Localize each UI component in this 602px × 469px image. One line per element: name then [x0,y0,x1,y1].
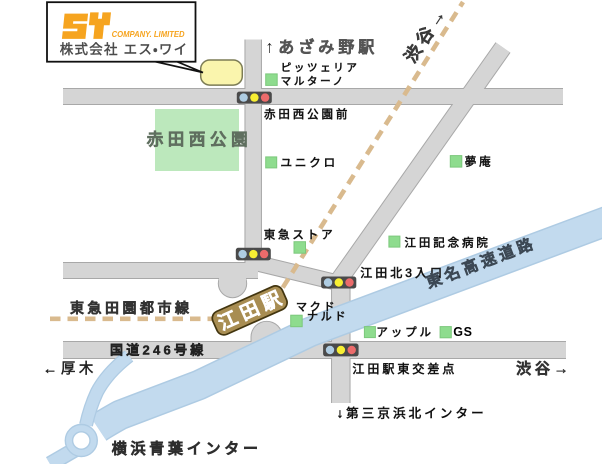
svg-text:渋谷→: 渋谷→ [516,360,572,378]
svg-text:←厚木: ←厚木 [43,361,97,378]
svg-text:ピッツェリア: ピッツェリア [281,62,360,74]
svg-text:GS: GS [453,325,472,339]
svg-text:横浜青葉インター: 横浜青葉インター [112,440,262,458]
svg-text:赤田西公園: 赤田西公園 [147,129,253,149]
svg-text:夢庵: 夢庵 [465,155,494,169]
svg-text:アップル: アップル [376,326,434,339]
svg-text:あざみ野駅: あざみ野駅 [278,37,378,56]
svg-text:江田駅東交差点: 江田駅東交差点 [352,362,457,376]
svg-text:赤田西公園前: 赤田西公園前 [264,107,350,121]
svg-text:東急田園都市線: 東急田園都市線 [70,300,193,316]
svg-text:株式会社 エス・ワイ: 株式会社 エス・ワイ [60,42,189,57]
svg-text:マルターノ: マルターノ [281,76,346,88]
svg-text:ナルド: ナルド [307,310,348,323]
svg-text:↑: ↑ [265,38,274,57]
svg-text:COMPANY. LIMITED: COMPANY. LIMITED [112,29,185,39]
svg-text:東急ストア: 東急ストア [264,228,336,242]
svg-text:ユニクロ: ユニクロ [281,157,339,170]
svg-text:江田記念病院: 江田記念病院 [405,236,491,249]
svg-text:国道246号線: 国道246号線 [110,343,206,358]
svg-text:↓第三京浜北インター: ↓第三京浜北インター [337,406,487,421]
